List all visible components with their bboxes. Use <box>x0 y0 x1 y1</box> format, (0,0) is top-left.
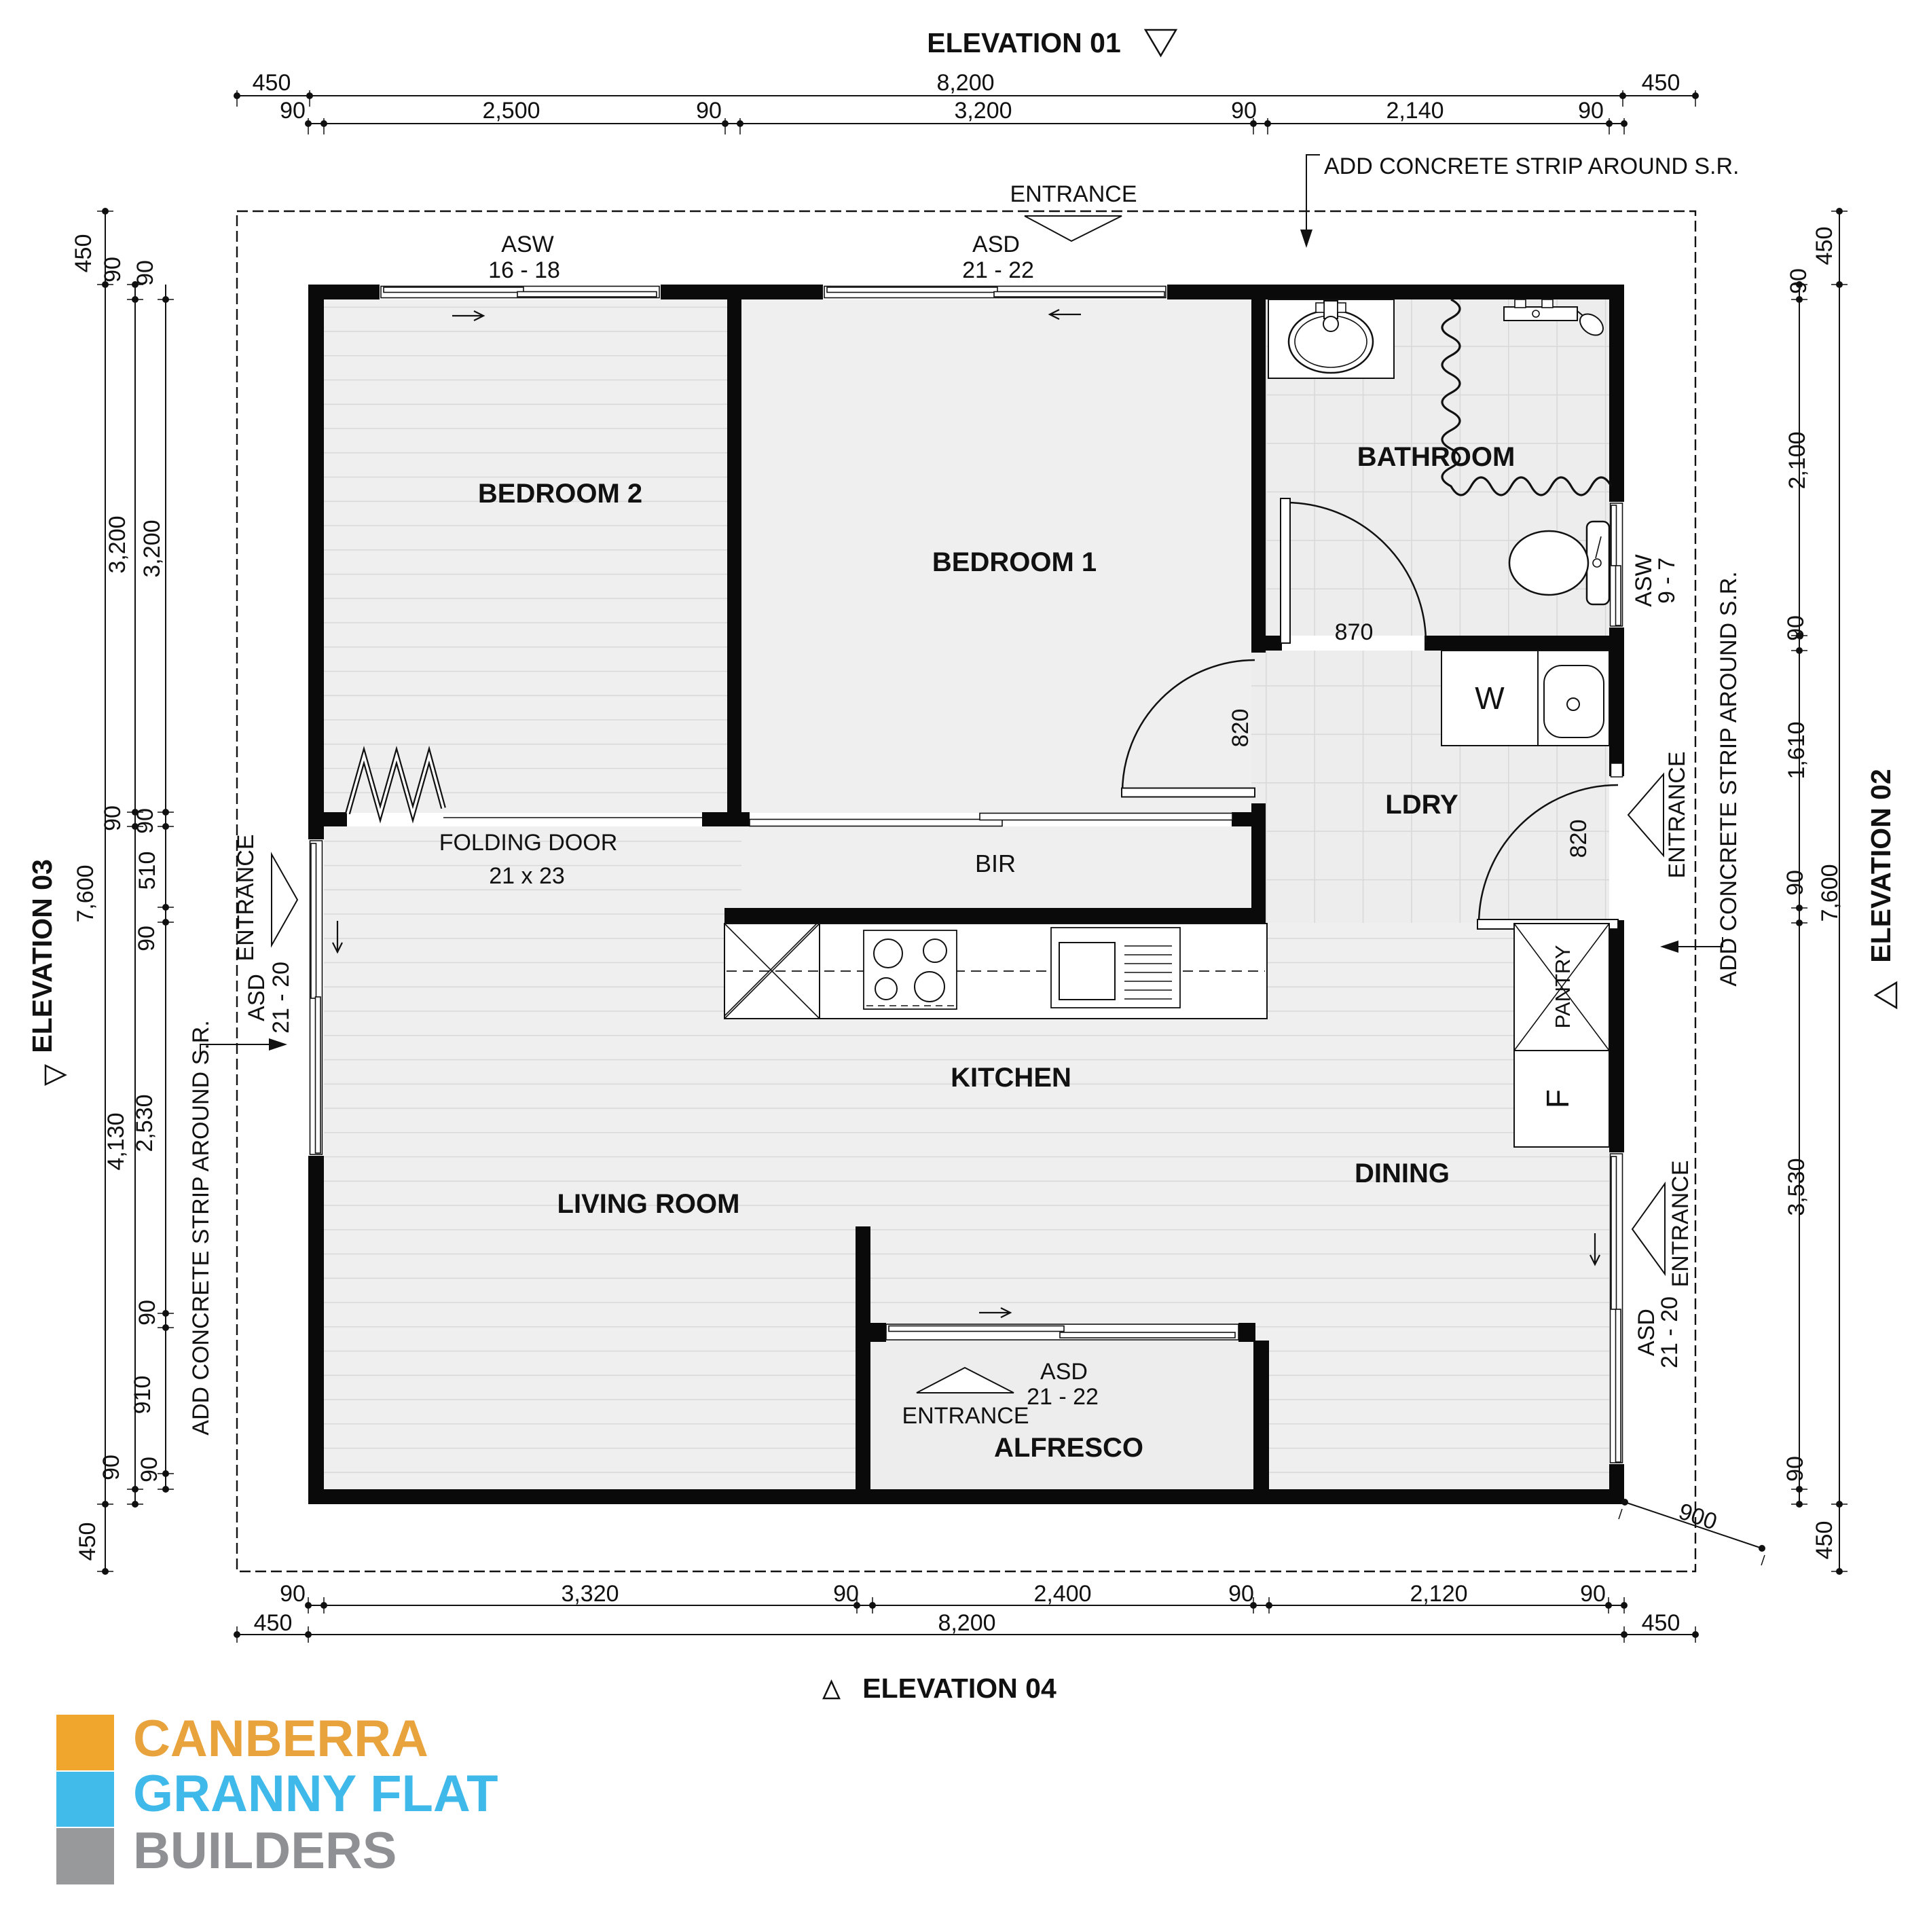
svg-text:BIR: BIR <box>975 850 1016 877</box>
svg-text:90: 90 <box>134 1300 160 1326</box>
svg-text:510: 510 <box>134 852 160 890</box>
svg-text:GRANNY FLAT: GRANNY FLAT <box>133 1765 498 1823</box>
svg-text:ASD: ASD <box>244 974 270 1021</box>
svg-text:ASD: ASD <box>1040 1359 1088 1385</box>
svg-text:ADD CONCRETE STRIP AROUND S.R.: ADD CONCRETE STRIP AROUND S.R. <box>1716 571 1742 986</box>
svg-text:3,200: 3,200 <box>954 98 1012 124</box>
svg-text:7,600: 7,600 <box>73 864 98 922</box>
svg-text:90: 90 <box>134 926 160 951</box>
svg-text:870: 870 <box>1335 619 1374 645</box>
svg-text:8,200: 8,200 <box>938 1610 995 1636</box>
svg-text:DINING: DINING <box>1355 1159 1450 1188</box>
svg-text:3,200: 3,200 <box>139 520 165 577</box>
svg-text:ENTRANCE: ENTRANCE <box>1010 181 1137 207</box>
svg-text:90: 90 <box>833 1581 859 1607</box>
svg-text:9 - 7: 9 - 7 <box>1654 558 1680 604</box>
svg-text:ADD CONCRETE STRIP AROUND S.R.: ADD CONCRETE STRIP AROUND S.R. <box>1324 153 1739 179</box>
svg-text:ASD: ASD <box>972 232 1020 257</box>
svg-text:BEDROOM 1: BEDROOM 1 <box>932 547 1097 577</box>
svg-text:ELEVATION 01: ELEVATION 01 <box>927 27 1121 58</box>
svg-text:21 - 22: 21 - 22 <box>962 257 1034 283</box>
svg-text:KITCHEN: KITCHEN <box>951 1063 1071 1093</box>
svg-text:3,200: 3,200 <box>105 515 130 573</box>
svg-text:2,400: 2,400 <box>1033 1581 1091 1607</box>
svg-text:21 - 22: 21 - 22 <box>1027 1384 1099 1410</box>
svg-text:450: 450 <box>71 234 96 273</box>
svg-text:90: 90 <box>98 1455 124 1480</box>
svg-text:90: 90 <box>1228 1581 1254 1607</box>
svg-text:21 - 20: 21 - 20 <box>1657 1296 1683 1368</box>
svg-text:90: 90 <box>696 98 722 124</box>
svg-text:2,140: 2,140 <box>1386 98 1444 124</box>
svg-text:BUILDERS: BUILDERS <box>133 1822 397 1880</box>
svg-text:ELEVATION 02: ELEVATION 02 <box>1865 769 1896 963</box>
svg-text:90: 90 <box>1580 1581 1606 1607</box>
svg-text:450: 450 <box>1812 227 1837 266</box>
svg-text:CANBERRA: CANBERRA <box>133 1710 428 1768</box>
svg-text:820: 820 <box>1566 820 1592 858</box>
svg-text:1,610: 1,610 <box>1784 721 1809 779</box>
svg-text:90: 90 <box>1231 98 1257 124</box>
svg-text:2,530: 2,530 <box>132 1094 158 1152</box>
svg-text:820: 820 <box>1228 709 1253 748</box>
svg-text:90: 90 <box>132 260 158 286</box>
svg-text:21 x 23: 21 x 23 <box>489 863 565 889</box>
svg-text:FOLDING DOOR: FOLDING DOOR <box>439 830 618 856</box>
svg-text:450: 450 <box>75 1523 100 1561</box>
svg-text:ALFRESCO: ALFRESCO <box>994 1433 1143 1463</box>
svg-text:90: 90 <box>1782 870 1808 896</box>
svg-text:16 - 18: 16 - 18 <box>488 257 560 283</box>
svg-text:7,600: 7,600 <box>1817 864 1843 922</box>
svg-text:450: 450 <box>1642 70 1680 96</box>
svg-text:2,500: 2,500 <box>482 98 540 124</box>
svg-text:90: 90 <box>136 1457 162 1482</box>
svg-text:90: 90 <box>1783 615 1809 641</box>
svg-text:90: 90 <box>280 1581 306 1607</box>
svg-text:ASD: ASD <box>1634 1309 1659 1356</box>
svg-text:W: W <box>1475 680 1505 716</box>
svg-text:90: 90 <box>280 98 306 124</box>
svg-text:ASW: ASW <box>501 232 553 257</box>
svg-text:F: F <box>1540 1089 1575 1108</box>
svg-text:BATHROOM: BATHROOM <box>1357 442 1515 472</box>
svg-text:ADD CONCRETE STRIP AROUND S.R.: ADD CONCRETE STRIP AROUND S.R. <box>188 1020 214 1435</box>
svg-text:450: 450 <box>253 70 291 96</box>
svg-text:4,130: 4,130 <box>103 1112 129 1170</box>
svg-text:21 - 20: 21 - 20 <box>268 962 294 1034</box>
svg-text:2,100: 2,100 <box>1784 431 1810 489</box>
svg-text:8,200: 8,200 <box>936 70 994 96</box>
svg-text:ELEVATION 04: ELEVATION 04 <box>862 1673 1057 1704</box>
svg-text:LIVING ROOM: LIVING ROOM <box>557 1189 740 1219</box>
svg-text:PANTRY: PANTRY <box>1551 945 1575 1029</box>
svg-text:450: 450 <box>1812 1521 1837 1560</box>
svg-text:90: 90 <box>100 257 126 282</box>
svg-text:90: 90 <box>132 808 158 834</box>
svg-text:90: 90 <box>1578 98 1604 124</box>
svg-text:ENTRANCE: ENTRANCE <box>1668 1160 1693 1287</box>
svg-text:ENTRANCE: ENTRANCE <box>1664 751 1690 878</box>
svg-text:3,530: 3,530 <box>1784 1158 1809 1216</box>
svg-text:3,320: 3,320 <box>561 1581 619 1607</box>
svg-text:2,120: 2,120 <box>1410 1581 1467 1607</box>
svg-text:ENTRANCE: ENTRANCE <box>902 1403 1029 1429</box>
svg-text:ELEVATION 03: ELEVATION 03 <box>26 859 58 1053</box>
svg-text:910: 910 <box>130 1376 155 1415</box>
svg-text:450: 450 <box>1642 1610 1680 1636</box>
svg-text:90: 90 <box>1782 1456 1808 1482</box>
svg-text:90: 90 <box>100 805 126 831</box>
svg-text:90: 90 <box>1786 268 1812 294</box>
svg-text:ASW: ASW <box>1631 554 1657 606</box>
svg-text:ENTRANCE: ENTRANCE <box>233 834 259 961</box>
svg-text:450: 450 <box>254 1610 293 1636</box>
svg-text:LDRY: LDRY <box>1385 790 1458 820</box>
svg-text:BEDROOM 2: BEDROOM 2 <box>478 479 642 509</box>
